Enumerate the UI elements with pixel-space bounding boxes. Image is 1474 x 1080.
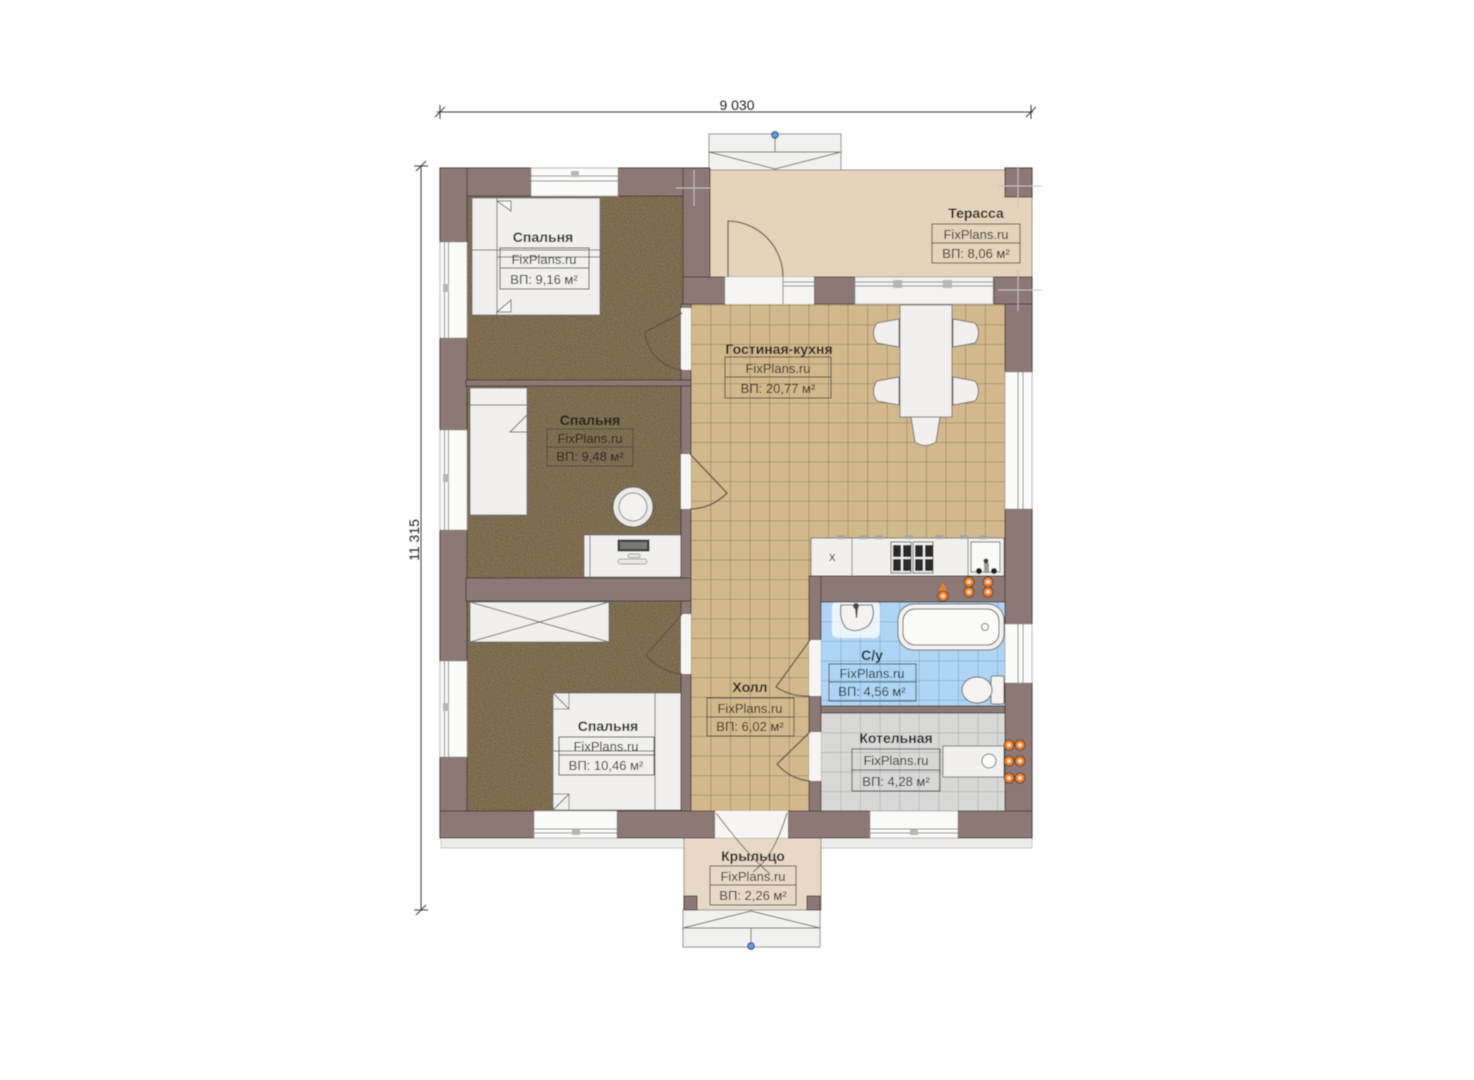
svg-text:Спальня: Спальня [578, 718, 638, 734]
svg-text:FixPlans.ru: FixPlans.ru [573, 739, 638, 754]
svg-text:FixPlans.ru: FixPlans.ru [863, 753, 928, 768]
svg-text:x: x [829, 549, 836, 564]
svg-text:ВП: 8,06 м²: ВП: 8,06 м² [942, 246, 1010, 261]
svg-text:FixPlans.ru: FixPlans.ru [943, 227, 1008, 242]
svg-text:ВП: 9,48 м²: ВП: 9,48 м² [556, 449, 624, 464]
svg-text:11 315: 11 315 [406, 519, 422, 561]
svg-text:Крыльцо: Крыльцо [721, 848, 785, 864]
svg-text:Спальня: Спальня [560, 412, 620, 428]
svg-text:Гостиная-кухня: Гостиная-кухня [725, 341, 832, 357]
svg-text:9 030: 9 030 [719, 97, 754, 113]
svg-text:ВП: 9,16 м²: ВП: 9,16 м² [510, 272, 578, 287]
svg-text:Котельная: Котельная [859, 730, 932, 746]
svg-text:ВП: 10,46 м²: ВП: 10,46 м² [569, 758, 644, 773]
svg-text:FixPlans.ru: FixPlans.ru [511, 252, 576, 267]
svg-text:Терасса: Терасса [948, 205, 1004, 221]
svg-text:FixPlans.ru: FixPlans.ru [717, 701, 782, 716]
svg-text:FixPlans.ru: FixPlans.ru [745, 361, 810, 376]
svg-text:С/у: С/у [861, 647, 883, 663]
svg-text:ВП: 20,77 м²: ВП: 20,77 м² [741, 381, 816, 396]
svg-text:FixPlans.ru: FixPlans.ru [720, 869, 785, 884]
svg-text:Спальня: Спальня [513, 229, 573, 245]
svg-text:Холл: Холл [732, 679, 767, 695]
svg-text:ВП: 6,02 м²: ВП: 6,02 м² [716, 719, 784, 734]
svg-text:ВП: 4,28 м²: ВП: 4,28 м² [862, 774, 930, 789]
svg-text:FixPlans.ru: FixPlans.ru [839, 666, 904, 681]
svg-text:ВП: 2,26 м²: ВП: 2,26 м² [719, 888, 787, 903]
svg-text:ВП: 4,56 м²: ВП: 4,56 м² [838, 684, 906, 699]
svg-text:FixPlans.ru: FixPlans.ru [557, 431, 622, 446]
